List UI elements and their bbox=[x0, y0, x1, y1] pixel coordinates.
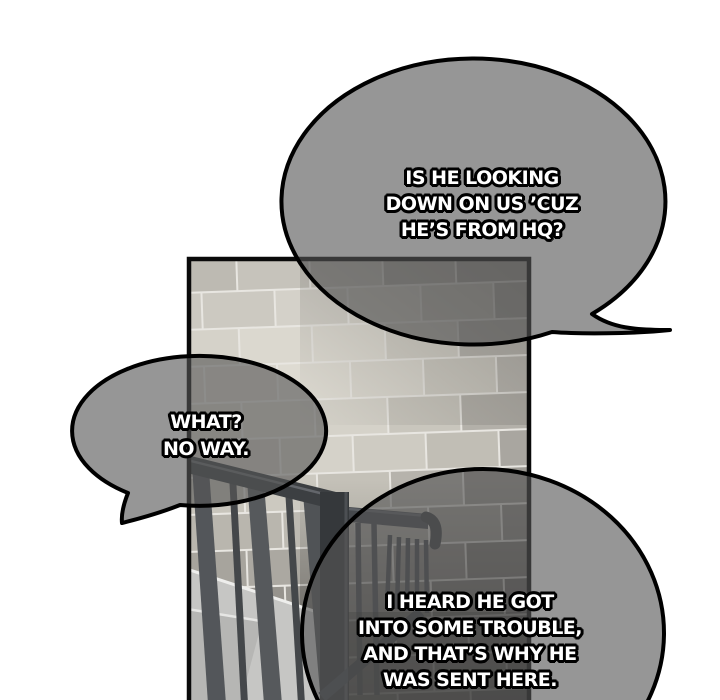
speech-bubble-top-text: IS HE LOOKING DOWN ON US ’CUZ HE’S FROM … bbox=[386, 165, 579, 243]
bubble-text-line: INTO SOME TROUBLE, bbox=[358, 615, 582, 641]
speech-bubble-left-text: WHAT? NO WAY. bbox=[163, 409, 249, 463]
comic-page: IS HE LOOKING DOWN ON US ’CUZ HE’S FROM … bbox=[0, 0, 720, 700]
bubble-text-line: AND THAT’S WHY HE bbox=[358, 641, 582, 667]
bubble-text-line: NO WAY. bbox=[163, 436, 249, 463]
bubble-text-line: IS HE LOOKING bbox=[386, 165, 579, 191]
bubble-text-line: I HEARD HE GOT bbox=[358, 589, 582, 615]
bubble-text-line: DOWN ON US ’CUZ bbox=[386, 191, 579, 217]
speech-bubble-bottom-text: I HEARD HE GOT INTO SOME TROUBLE, AND TH… bbox=[358, 589, 582, 693]
bubble-text-line: WAS SENT HERE. bbox=[358, 667, 582, 693]
bubble-text-line: HE’S FROM HQ? bbox=[386, 217, 579, 243]
bubble-text-line: WHAT? bbox=[163, 409, 249, 436]
